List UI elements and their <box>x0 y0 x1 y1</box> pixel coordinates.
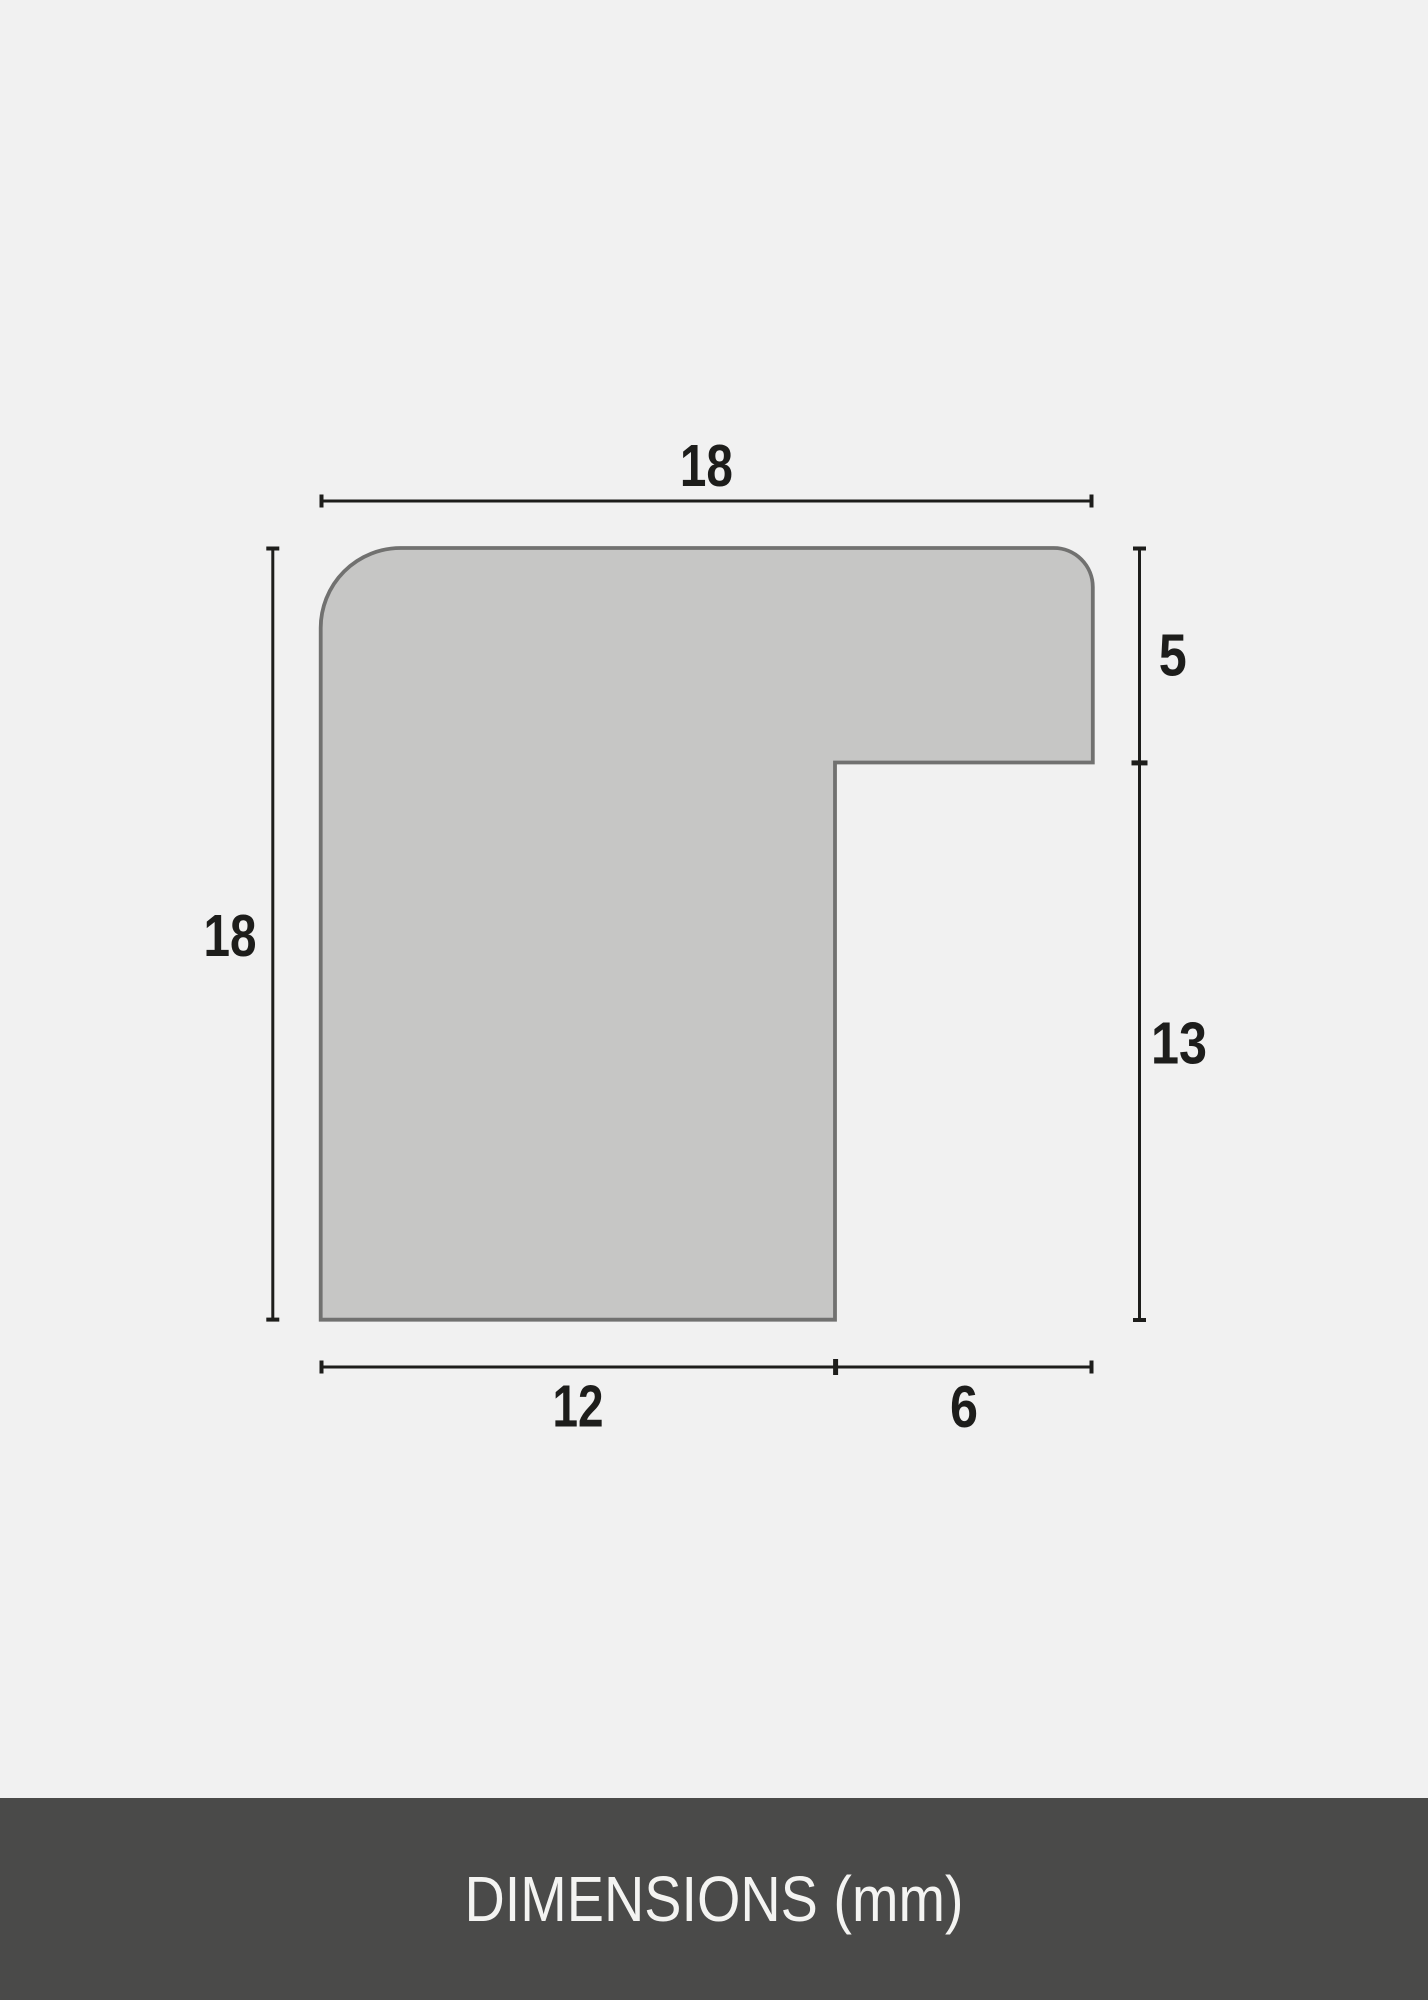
svg-text:DIMENSIONS (mm): DIMENSIONS (mm) <box>465 1863 964 1935</box>
svg-text:18: 18 <box>680 433 733 499</box>
svg-text:13: 13 <box>1151 1011 1207 1077</box>
svg-text:6: 6 <box>950 1374 978 1440</box>
svg-text:5: 5 <box>1159 623 1187 689</box>
svg-text:18: 18 <box>204 903 257 969</box>
svg-text:12: 12 <box>553 1374 604 1440</box>
